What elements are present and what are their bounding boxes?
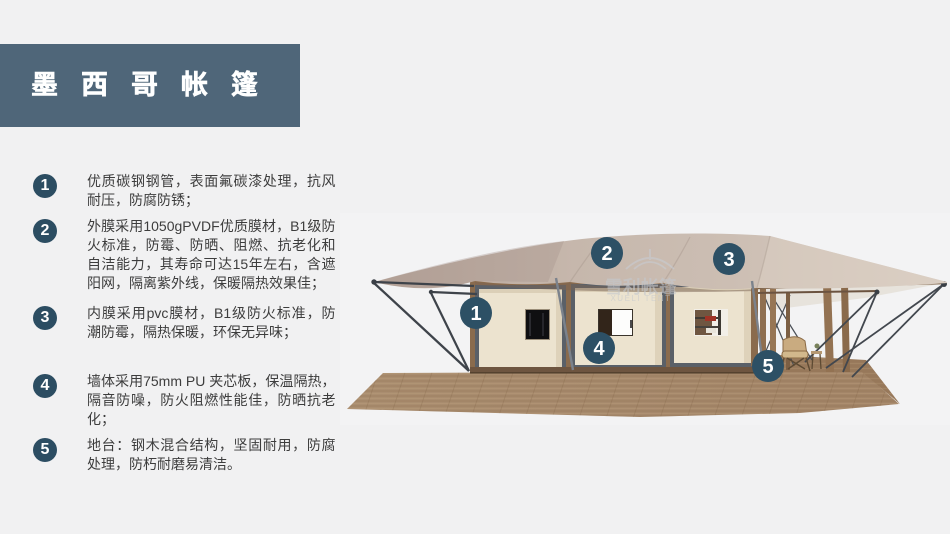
svg-text:XUELI TENT: XUELI TENT [610,294,671,303]
svg-text:4: 4 [593,338,605,360]
svg-text:3: 3 [723,249,734,271]
svg-text:1: 1 [470,303,481,325]
svg-text:5: 5 [762,356,773,378]
svg-text:2: 2 [601,243,612,265]
